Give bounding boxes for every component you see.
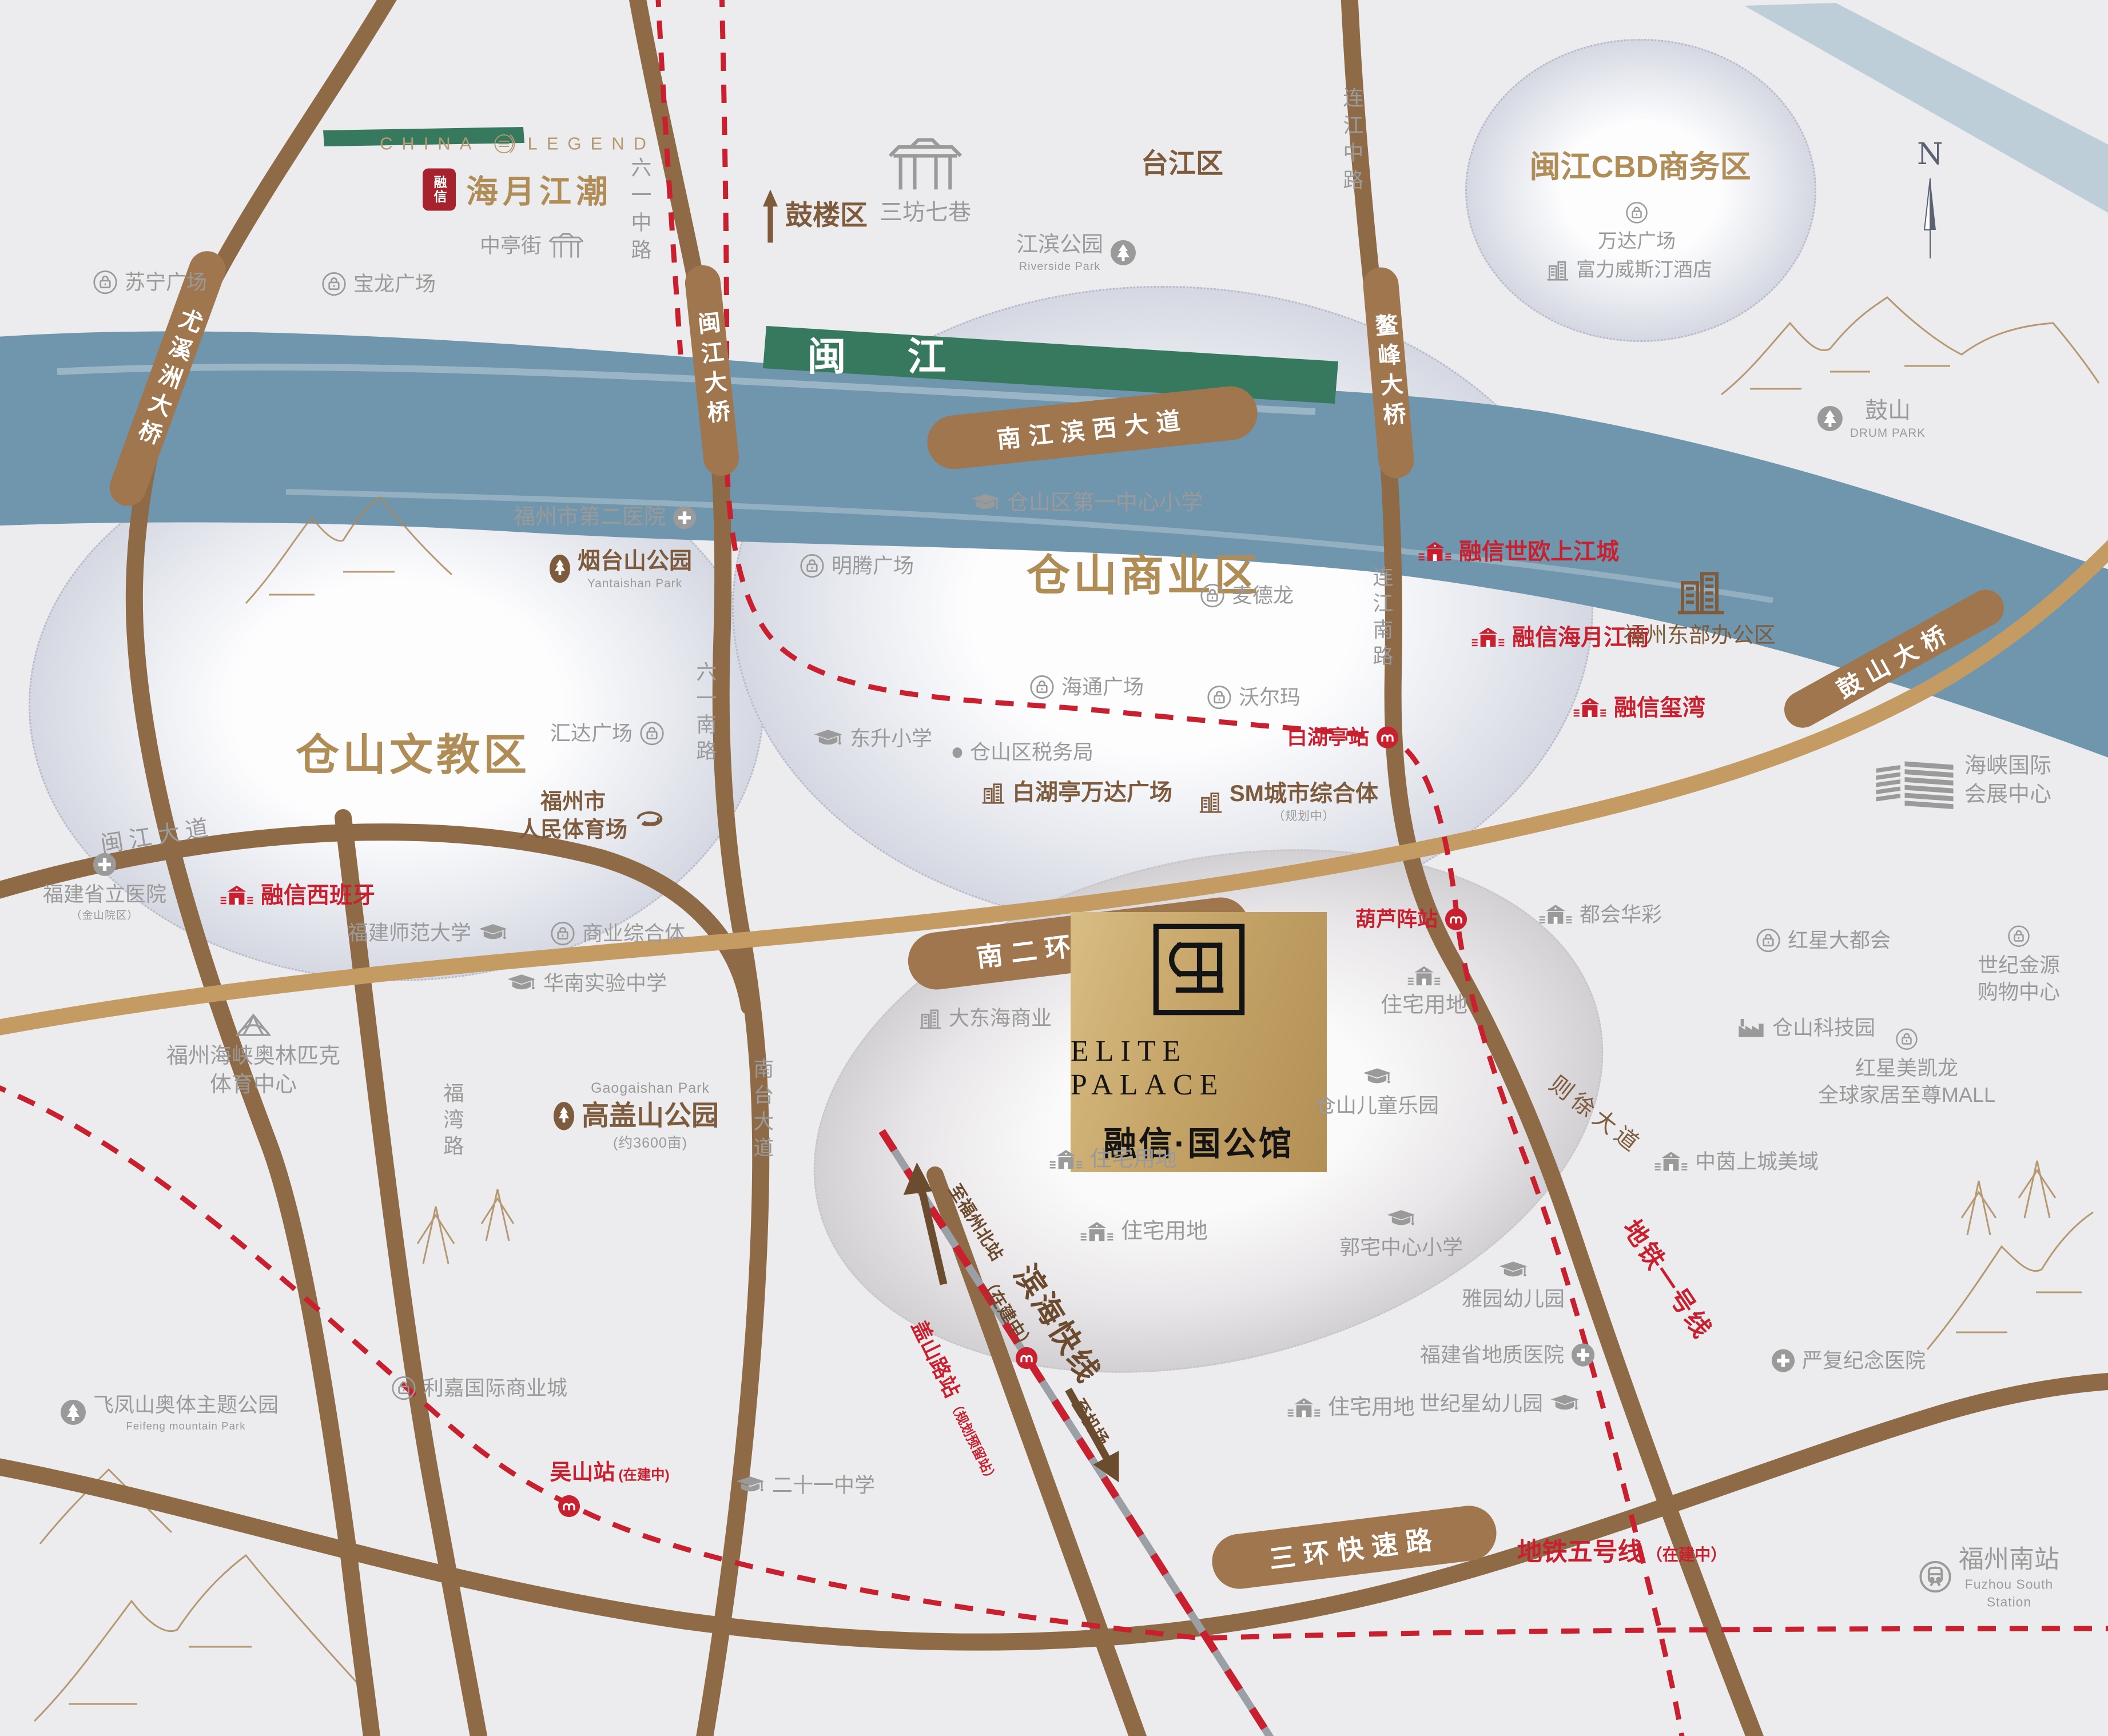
rx-haiyue-jn: 融信海月江南 <box>1471 623 1649 652</box>
baihuting-wanda: 白湖亭万达广场 <box>980 778 1172 807</box>
geology-hospital: 福建省地质医院 <box>1420 1342 1595 1369</box>
jiangbin-park: 江滨公园Riverside Park <box>1016 231 1136 274</box>
yantaishan-park: 烟台山公园Yantaishan Park <box>549 546 692 592</box>
bag-icon <box>321 272 347 297</box>
cap-icon <box>971 493 1000 513</box>
brand-emblem-icon <box>491 131 517 157</box>
treeC-icon <box>1817 405 1843 432</box>
bag-icon <box>1207 685 1232 710</box>
rx-shiou: 融信世欧上江城 <box>1418 537 1619 567</box>
cross-icon <box>93 853 117 877</box>
road-fuwan <box>343 818 483 1736</box>
brand-en-left: CHINA <box>380 134 480 154</box>
feifengshan-park: 飞凤山奥体主题公园Feifeng mountain Park <box>60 1392 279 1433</box>
dadonghai: 大东海商业 <box>918 1005 1052 1032</box>
houseR-icon <box>1418 541 1452 563</box>
river-name-label: 闽 江 <box>808 325 972 382</box>
nanjiangbin-west-ave-label: 南江滨西大道 <box>995 400 1190 455</box>
cangshan-first-primary: 仓山区第一中心小学 <box>971 489 1203 517</box>
bag-icon <box>639 721 665 746</box>
project-card: ELITE PALACE 融信·国公馆 <box>1071 912 1327 1172</box>
fuli-westin: 富力威斯汀酒店 <box>1545 257 1712 282</box>
lijia-city: 利嘉国际商业城 <box>391 1375 567 1402</box>
houseR-icon <box>1573 697 1607 719</box>
baolong-plaza: 宝龙广场 <box>321 271 436 298</box>
expo-icon <box>1872 751 1958 811</box>
cap-icon <box>507 973 536 994</box>
bag-icon <box>1029 675 1055 700</box>
towers-icon <box>1545 258 1569 282</box>
sanfangqixiang: 三坊七巷 <box>880 136 971 227</box>
fuwan-rd: 福湾路 <box>439 1082 466 1161</box>
liuyi-middle-rd: 六一中路 <box>626 157 653 266</box>
residential-b: 住宅用地 <box>1049 1145 1177 1173</box>
oly-icon <box>234 1012 272 1038</box>
brand-row: CHINA LEGEND <box>380 131 655 157</box>
brand-en-right: LEGEND <box>527 134 655 154</box>
fuzhou-south-station: 福州南站Fuzhou SouthStation <box>1919 1543 2059 1611</box>
baihuting-station: 白湖亭站 <box>1287 724 1399 751</box>
metro-icon <box>1445 908 1467 931</box>
bldg-icon <box>1198 789 1223 814</box>
arrowUp-icon <box>762 189 778 242</box>
compass-needle-icon <box>1919 175 1942 261</box>
mingteng-plaza: 明腾广场 <box>800 553 914 580</box>
huluzhen-station: 葫芦阵站 <box>1355 906 1467 933</box>
cap-icon <box>478 923 508 943</box>
duhui-huacai: 都会华彩 <box>1538 902 1662 929</box>
stadium-icon <box>634 807 665 826</box>
residential-a: 住宅用地 <box>1381 965 1467 1020</box>
sjjy-mall: 世纪金源购物中心 <box>1978 925 2060 1006</box>
taijiang-district: 台江区 <box>1141 146 1223 182</box>
wushan-station-icon <box>558 1495 580 1518</box>
bag-icon <box>1625 201 1648 224</box>
cap-icon <box>813 728 843 749</box>
treeC-icon <box>60 1399 86 1426</box>
maidelong: 麦德龙 <box>1200 583 1294 610</box>
minjiang-cbd-zone: 闽江CBD商务区 <box>1530 147 1751 187</box>
huanan-school: 华南实验中学 <box>507 970 667 997</box>
cross-icon <box>1571 1343 1595 1367</box>
hxmkl-mall: 红星美凯龙全球家居至尊MALL <box>1818 1028 1995 1109</box>
houseG-icon <box>1538 904 1573 926</box>
metro-icon <box>1376 726 1399 749</box>
liuyi-south-rd: 六一南路 <box>691 661 718 766</box>
haitong-plaza: 海通广场 <box>1029 674 1144 701</box>
gaogaishan-park: Gaogaishan Park高盖山公园(约3600亩) <box>553 1079 719 1153</box>
residential-d: 住宅用地 <box>1287 1393 1415 1422</box>
expo-center: 海峡国际会展中心 <box>1872 751 2051 811</box>
no21-school: 二十一中学 <box>735 1472 875 1499</box>
provincial-hospital: 福建省立医院（金山院区） <box>43 853 166 922</box>
renmin-stadium: 福州市人民体育场 <box>519 789 665 845</box>
towersBig-icon <box>1673 564 1726 617</box>
rx-spain: 融信西班牙 <box>220 881 375 910</box>
bag-icon <box>391 1376 416 1401</box>
houseG-icon <box>1407 965 1441 987</box>
haiyue-jiangchao-label: 海月江潮 <box>466 166 612 213</box>
elite-palace-logo-icon <box>1149 919 1249 1020</box>
factory-icon <box>1737 1017 1765 1039</box>
cap-icon <box>735 1475 765 1496</box>
sm-complex: SM城市综合体（规划中） <box>1198 779 1378 825</box>
dot-icon <box>952 746 963 759</box>
children-park: 仓山儿童乐园 <box>1315 1068 1439 1120</box>
cross-icon <box>673 505 697 529</box>
cross-icon <box>1771 1349 1795 1373</box>
bag-icon <box>1200 583 1225 608</box>
cap-icon <box>1498 1261 1528 1281</box>
cap-icon <box>1550 1393 1580 1414</box>
lianjiang-middle-rd: 连江中路 <box>1338 87 1365 197</box>
hx-metropolis: 红星大都会 <box>1756 927 1891 954</box>
treeO-icon <box>553 1101 575 1130</box>
houseG-icon <box>1287 1397 1321 1419</box>
fz-east-office: 福州东部办公区 <box>1624 564 1776 650</box>
yanfu-hospital: 严复纪念医院 <box>1771 1348 1926 1375</box>
bag-icon <box>1756 928 1781 953</box>
project-name-en: ELITE PALACE <box>1071 1034 1327 1102</box>
dongsheng-primary: 东升小学 <box>813 726 932 752</box>
wenjiao-zone: 仓山文教区 <box>296 728 530 785</box>
houseG-icon <box>1049 1149 1083 1170</box>
cap-icon <box>1362 1068 1392 1088</box>
brand-block: CHINA LEGEND 融信 海月江潮 <box>380 131 655 213</box>
rail-icon <box>1919 1560 1952 1594</box>
shangye-complex: 商业综合体 <box>550 921 685 947</box>
cangshan-tax: 仓山区税务局 <box>952 739 1093 766</box>
bldg-icon <box>980 780 1005 805</box>
gate-icon <box>548 232 584 259</box>
shijixing-kg: 世纪星幼儿园 <box>1419 1391 1580 1418</box>
gushan-park: 鼓山DRUM PARK <box>1817 396 1926 441</box>
fz-second-hospital: 福州市第二医院 <box>514 503 697 531</box>
compass: N <box>1917 137 1943 261</box>
olympic-center: 福州海峡奥林匹克体育中心 <box>166 1012 340 1099</box>
nantai-avenue: 南台大道 <box>749 1058 775 1163</box>
houseR-icon <box>220 885 254 906</box>
bag-icon <box>1895 1028 1918 1050</box>
suning-plaza: 苏宁广场 <box>93 269 207 296</box>
bag-icon <box>2007 925 2030 947</box>
wanda-plaza: 万达广场 <box>1598 201 1676 254</box>
gateBig-icon <box>888 136 962 193</box>
treeC-icon <box>1110 240 1136 266</box>
wushan-station: 吴山站(在建中) <box>550 1459 669 1487</box>
zhongtingjie: 中亭街 <box>480 232 584 259</box>
road-youxizhou <box>134 0 400 1736</box>
lianjiang-south-rd: 连江南路 <box>1368 566 1395 671</box>
metro-line5-label: 地铁五号线（在建中） <box>1517 1535 1727 1568</box>
gulou-district: 鼓楼区 <box>762 189 868 242</box>
huida-plaza: 汇达广场 <box>550 720 665 747</box>
fjnu: 福建师范大学 <box>348 920 508 947</box>
houseR-icon <box>1471 627 1505 648</box>
guozhai-primary: 郭宅中心小学 <box>1339 1209 1463 1261</box>
zhongyin: 中茵上城美域 <box>1654 1149 1819 1176</box>
towers-icon <box>918 1006 942 1030</box>
residential-c: 住宅用地 <box>1080 1217 1208 1245</box>
bag-icon <box>800 554 825 579</box>
location-map: CHINA LEGEND 融信 海月江潮 闽 江 N <box>0 0 2108 1736</box>
walmart: 沃尔玛 <box>1207 684 1300 711</box>
bag-icon <box>550 921 575 946</box>
cap-icon <box>1386 1209 1416 1230</box>
rx-xiwan: 融信玺湾 <box>1573 693 1705 723</box>
houseG-icon <box>1080 1221 1114 1243</box>
bag-icon <box>93 270 118 295</box>
compass-n-label: N <box>1917 137 1943 172</box>
metro-icon <box>558 1495 580 1518</box>
treeO-icon <box>549 554 571 583</box>
houseG-icon <box>1654 1151 1688 1173</box>
yayuan-kg: 雅园幼儿园 <box>1462 1261 1565 1313</box>
rongxin-seal: 融信 <box>423 168 456 210</box>
